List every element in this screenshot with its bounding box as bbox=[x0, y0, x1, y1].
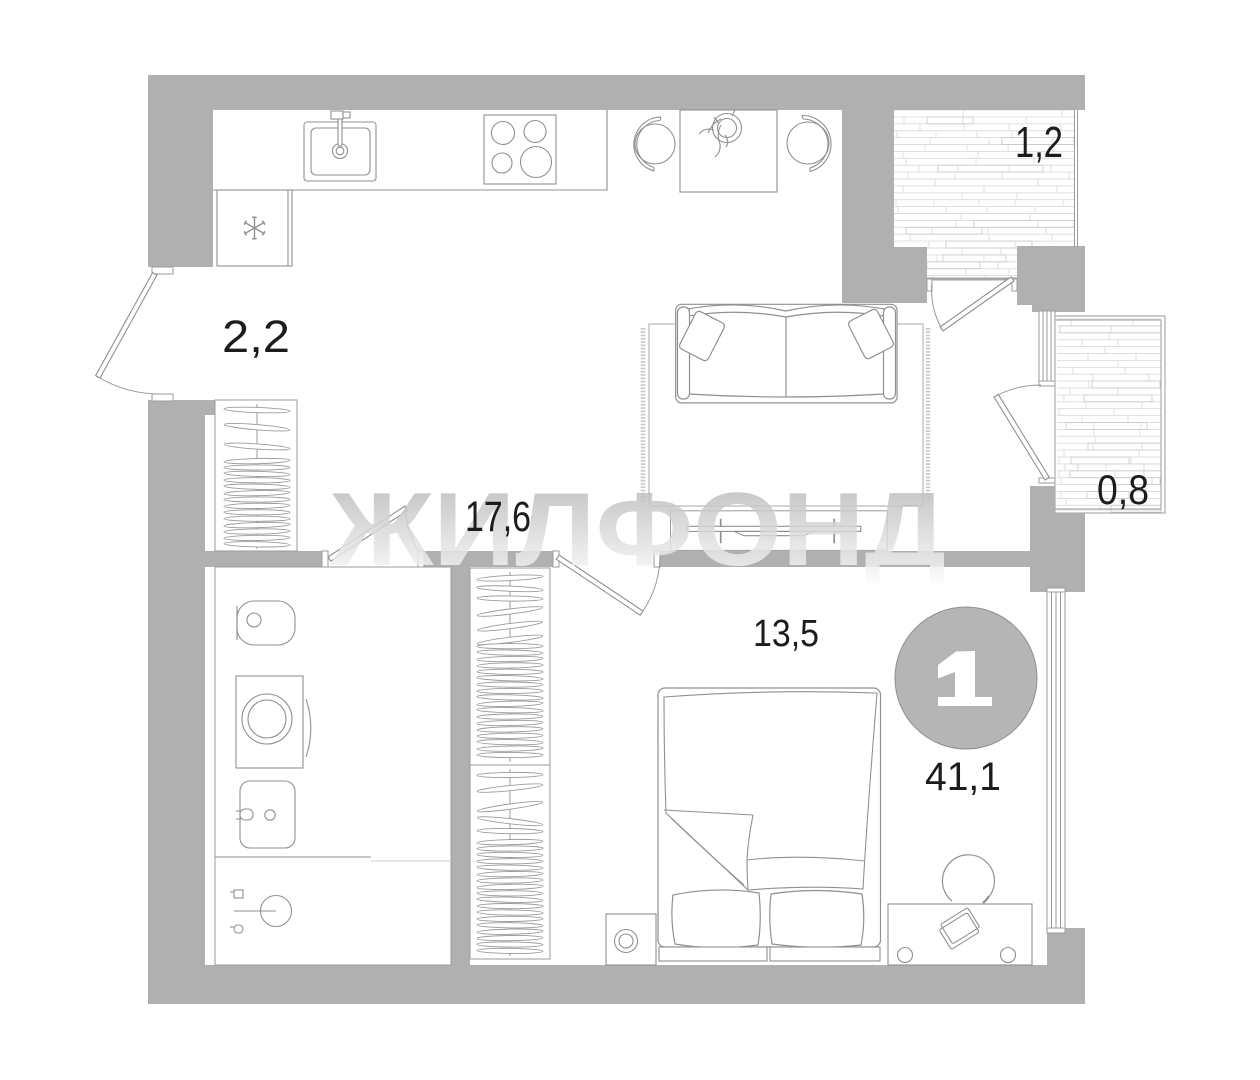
svg-text:2,2: 2,2 bbox=[222, 311, 290, 362]
svg-text:ЖИЛФОНД: ЖИЛФОНД bbox=[329, 472, 946, 588]
svg-text:17,6: 17,6 bbox=[465, 493, 531, 541]
svg-text:41,1: 41,1 bbox=[925, 755, 1001, 799]
svg-text:0,8: 0,8 bbox=[1097, 466, 1149, 513]
svg-text:1,2: 1,2 bbox=[1015, 118, 1063, 167]
svg-text:13,5: 13,5 bbox=[753, 613, 819, 655]
